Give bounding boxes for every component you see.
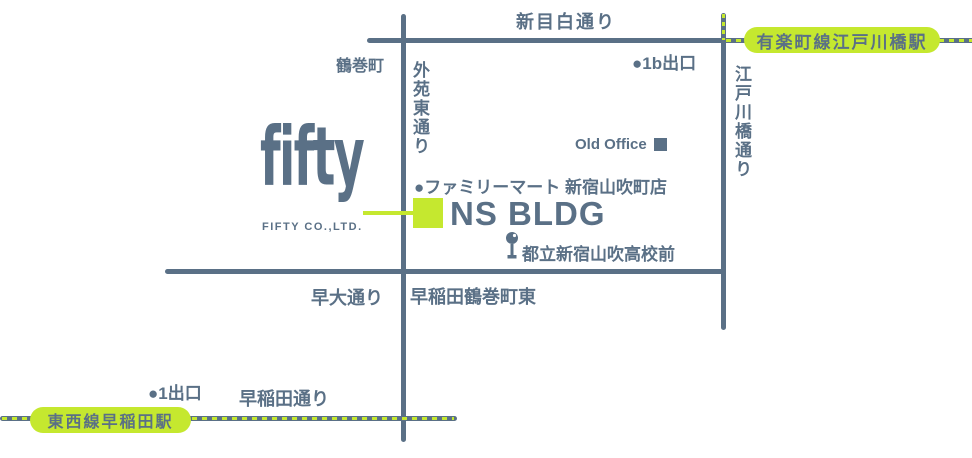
station-waseda: 東西線早稲田駅 <box>30 407 191 433</box>
label-edogawabashi-dori: 江戸川橋通り <box>731 65 751 179</box>
exit-dot-icon: ● <box>148 384 158 403</box>
yurakucho-line-dashes-vertical <box>722 14 725 40</box>
label-shin-mejiro-dori: 新目白通り <box>516 8 616 34</box>
logo-callout-line <box>363 211 415 215</box>
ns-bldg-marker <box>413 198 443 228</box>
ns-bldg-title: NS BLDG <box>450 195 606 233</box>
label-old-office: Old Office <box>575 136 667 153</box>
station-edogawabashi: 有楽町線江戸川橋駅 <box>744 27 940 53</box>
bus-stop-icon <box>504 231 520 259</box>
exit-dot-icon: ● <box>632 54 642 73</box>
station-waseda-label: 東西線早稲田駅 <box>47 408 173 432</box>
old-office-marker-icon <box>654 138 667 151</box>
access-map: 有楽町線江戸川橋駅 東西線早稲田駅 新目白通り 鶴巻町 外苑東通り ●1b出口 … <box>0 0 972 458</box>
road-sodai-dori <box>165 269 726 274</box>
yurakucho-line-segment-right <box>939 38 972 43</box>
road-edogawabashi-dori <box>721 13 726 330</box>
fifty-company-name: FIFTY CO.,LTD. <box>262 221 363 233</box>
label-waseda-dori: 早稲田通り <box>239 385 329 411</box>
label-sodai-dori: 早大通り <box>311 284 383 310</box>
road-gaien-higashi-dori <box>401 14 406 442</box>
label-exit-1: ●1出口 <box>148 379 202 404</box>
station-edogawabashi-label: 有楽町線江戸川橋駅 <box>757 28 928 53</box>
label-bus-stop: 都立新宿山吹高校前 <box>522 240 675 265</box>
familymart-dot-icon: ● <box>414 178 424 197</box>
label-waseda-tsurumakicho-higashi: 早稲田鶴巻町東 <box>410 283 536 309</box>
road-shin-mejiro-dori <box>367 38 726 43</box>
yurakucho-line-segment <box>726 38 746 43</box>
label-gaien-higashi-dori: 外苑東通り <box>409 61 429 156</box>
label-exit-1b: ●1b出口 <box>632 49 696 74</box>
label-tsurumakicho: 鶴巻町 <box>336 52 384 76</box>
fifty-logo: fifty <box>260 118 363 199</box>
